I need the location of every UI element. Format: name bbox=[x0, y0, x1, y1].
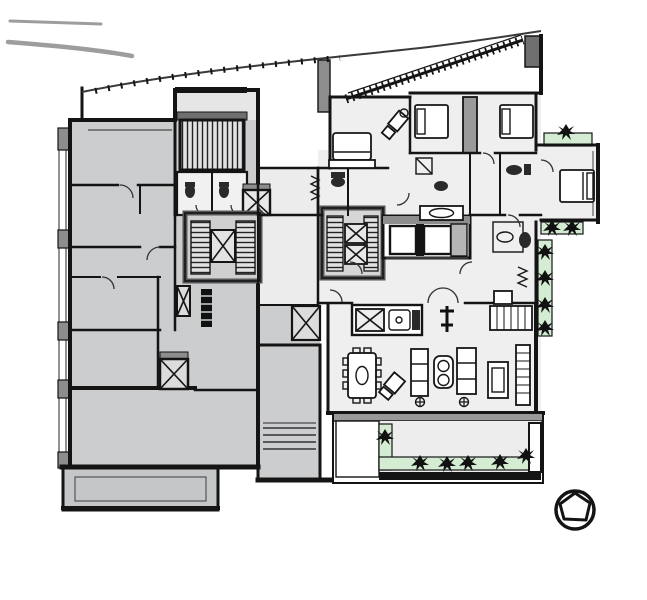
hall-console-table bbox=[420, 206, 463, 220]
elevator-bank bbox=[383, 216, 470, 258]
core-toilets bbox=[177, 172, 247, 215]
unit-a-terrace bbox=[63, 468, 218, 510]
sofa bbox=[411, 349, 428, 396]
shaft-x-service bbox=[292, 306, 320, 340]
core-scissor-stair-2 bbox=[322, 208, 383, 278]
bed bbox=[560, 170, 594, 202]
bench bbox=[494, 291, 512, 304]
floor-plan-svg bbox=[0, 0, 647, 600]
shaft-x-narrow bbox=[177, 286, 190, 316]
bedroom-2 bbox=[415, 105, 448, 138]
bed bbox=[500, 105, 533, 138]
shelf-column bbox=[516, 345, 530, 405]
planter-column-east bbox=[536, 240, 554, 336]
toilet-icon bbox=[506, 165, 522, 175]
potted-flower-icon bbox=[460, 398, 469, 407]
bedroom-3 bbox=[500, 105, 533, 138]
toilet-icon bbox=[519, 232, 531, 248]
tree-symbol bbox=[556, 491, 594, 529]
bed bbox=[329, 133, 375, 168]
dining-table bbox=[343, 348, 381, 403]
sofa bbox=[457, 348, 476, 394]
core-elevator-1 bbox=[243, 184, 270, 215]
ottoman-pair bbox=[434, 356, 453, 388]
elevator-car bbox=[390, 226, 416, 254]
shelving-unit-icon bbox=[201, 289, 212, 327]
tv-cabinet bbox=[488, 362, 508, 398]
unit-b-terrace bbox=[333, 413, 543, 483]
shaft-x-large bbox=[160, 352, 188, 389]
toilet-icon bbox=[434, 181, 448, 191]
elevator-car bbox=[424, 226, 451, 254]
core-stair-1 bbox=[177, 112, 247, 170]
core-scissor-stair-1 bbox=[185, 213, 260, 281]
toilet-icon bbox=[331, 177, 345, 187]
potted-flower-icon bbox=[416, 398, 425, 407]
floor-plan-page bbox=[0, 0, 647, 600]
kitchen-island bbox=[352, 305, 422, 335]
sideboard bbox=[490, 306, 532, 330]
bed bbox=[415, 105, 448, 138]
